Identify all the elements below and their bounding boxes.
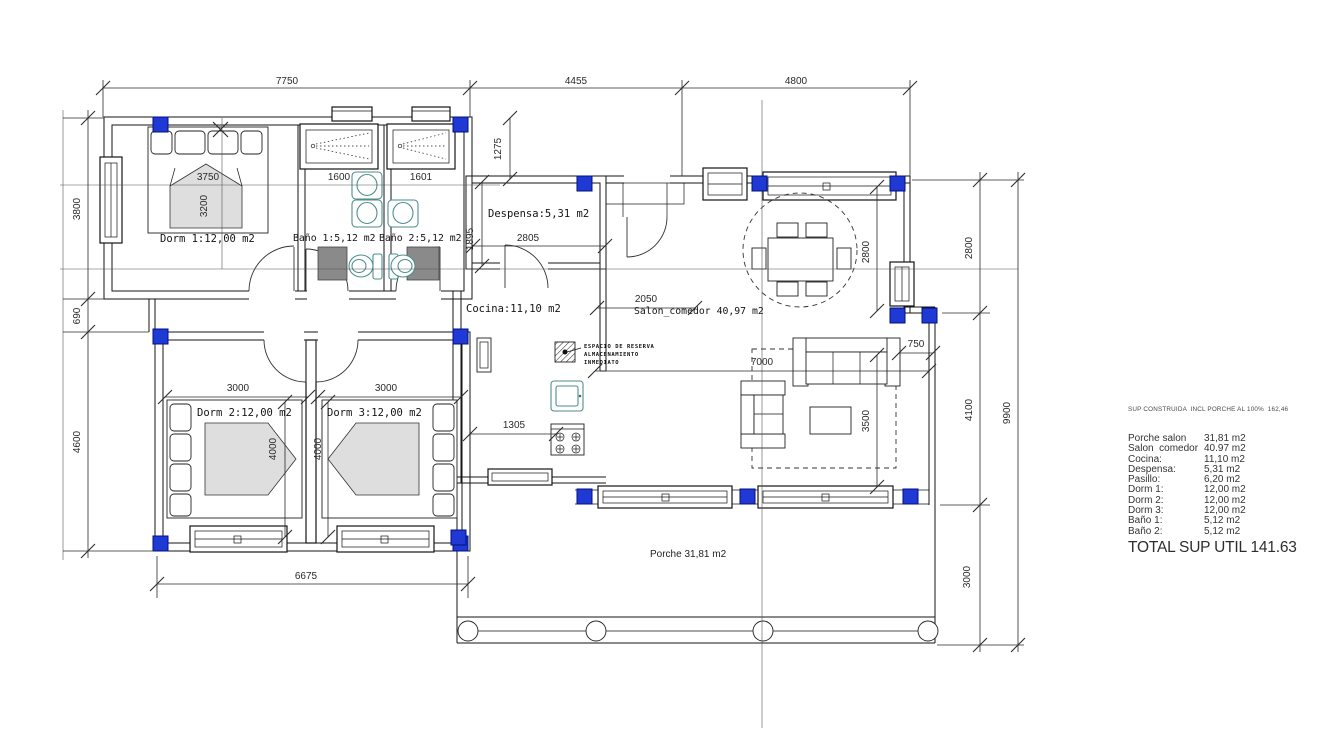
dim-1275: 1275 [493, 137, 504, 160]
dim-2050: 2050 [635, 294, 658, 305]
room-label-salon: Salon_comedor 40,97 m2 [634, 306, 764, 317]
reserva-text-line1: ESPACIO DE RESERVA [584, 344, 654, 350]
summary-total: TOTAL SUP UTIL 141.63 [1128, 539, 1303, 557]
dim-right-9900: 9900 [1002, 401, 1013, 424]
summary-row-label: Baño 2: [1128, 527, 1204, 537]
reserva-text-line2: ALMACENAMIENTO [584, 352, 639, 358]
room-label-porche: Porche 31,81 m2 [650, 549, 727, 560]
floorplan-sheet: 7750 4455 4800 3800 690 4600 2800 4100 3… [0, 0, 1329, 735]
room-label-dorm3: Dorm 3:12,00 m2 [327, 407, 422, 419]
dim-3000-dorm3: 3000 [375, 383, 398, 394]
dining-set [743, 193, 857, 307]
window-label-1601: 1601 [410, 172, 433, 183]
dim-right-3000: 3000 [962, 565, 973, 588]
dim-right-2800: 2800 [964, 236, 975, 259]
room-label-dorm1: Dorm 1:12,00 m2 [160, 233, 255, 245]
room-label-bano2: Baño 2:5,12 m2 [379, 233, 462, 244]
dim-top-7750: 7750 [276, 76, 299, 87]
dim-left-4600: 4600 [72, 430, 83, 453]
dim-7000: 7000 [751, 357, 774, 368]
dim-left-690: 690 [72, 307, 83, 324]
dim-4000-dorm3: 4000 [313, 437, 324, 460]
dim-left-3800: 3800 [72, 197, 83, 220]
dim-3750: 3750 [197, 172, 220, 183]
kitchen-fixtures [477, 338, 584, 455]
dim-top-4455: 4455 [565, 76, 588, 87]
area-summary-table: SUP CONSTRUIDA INCL PORCHE AL 100% 162,4… [1128, 406, 1303, 557]
dim-bottom-6675: 6675 [295, 571, 318, 582]
reserva-text-line3: INMEDIATO [584, 360, 619, 366]
dim-right-4100: 4100 [964, 398, 975, 421]
dim-3200: 3200 [199, 194, 210, 217]
reserva-dot [563, 350, 568, 355]
summary-row-value: 5,12 m2 [1204, 526, 1240, 537]
summary-header: SUP CONSTRUIDA INCL PORCHE AL 100% 162,4… [1128, 406, 1303, 413]
room-label-despensa: Despensa:5,31 m2 [488, 208, 589, 220]
room-label-dorm2: Dorm 2:12,00 m2 [197, 407, 292, 419]
floorplan-drawing: 7750 4455 4800 3800 690 4600 2800 4100 3… [0, 0, 1329, 735]
porch-columns [458, 621, 938, 641]
dim-1305: 1305 [503, 420, 526, 431]
dim-3000-dorm2: 3000 [227, 383, 250, 394]
dim-2805: 2805 [517, 233, 540, 244]
room-label-bano1: Baño 1:5,12 m2 [293, 233, 376, 244]
shower-1601 [387, 124, 455, 169]
room-label-cocina: Cocina:11,10 m2 [466, 303, 561, 315]
shower-1600 [300, 124, 378, 169]
dim-4000-dorm2: 4000 [268, 437, 279, 460]
bathroom-fixtures [318, 172, 439, 280]
dim-750: 750 [908, 339, 925, 350]
dim-top-4800: 4800 [785, 76, 808, 87]
stove [551, 424, 584, 455]
summary-row: Baño 2:5,12 m2 [1128, 527, 1303, 537]
dim-2800-interior: 2800 [861, 240, 872, 263]
window-label-1600: 1600 [328, 172, 351, 183]
dim-1895: 1895 [465, 227, 476, 250]
dim-3500: 3500 [861, 409, 872, 432]
